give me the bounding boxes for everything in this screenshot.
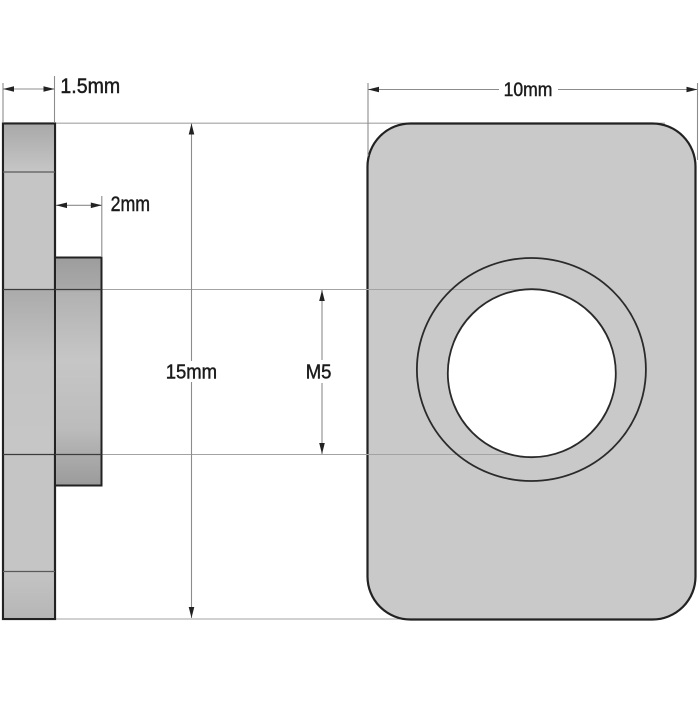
svg-text:1.5mm: 1.5mm — [60, 75, 120, 98]
svg-text:15mm: 15mm — [166, 362, 217, 384]
svg-text:M5: M5 — [306, 361, 332, 383]
svg-text:2mm: 2mm — [111, 193, 151, 216]
svg-text:10mm: 10mm — [504, 80, 553, 101]
